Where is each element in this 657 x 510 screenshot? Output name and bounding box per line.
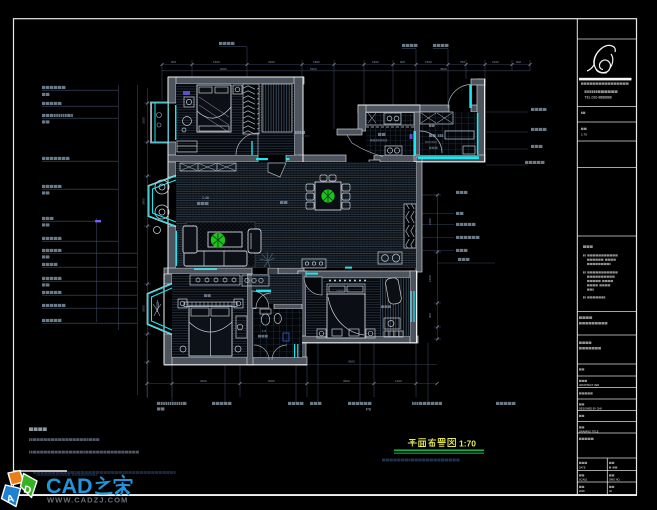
svg-text:1:70: 1:70 bbox=[459, 439, 476, 449]
svg-text:A0: A0 bbox=[609, 490, 613, 493]
svg-text:1.5: 1.5 bbox=[262, 329, 267, 333]
svg-text:DWG NO.: DWG NO. bbox=[609, 479, 621, 482]
svg-text:1200: 1200 bbox=[395, 379, 402, 383]
svg-text:9000: 9000 bbox=[220, 67, 227, 71]
svg-text:2100: 2100 bbox=[492, 60, 499, 64]
svg-text:2250: 2250 bbox=[428, 218, 432, 225]
svg-text:1800X2000: 1800X2000 bbox=[336, 289, 350, 293]
svg-text:DRAWING TITLE: DRAWING TITLE bbox=[579, 431, 599, 434]
svg-text:750: 750 bbox=[460, 60, 465, 64]
svg-text:1.46: 1.46 bbox=[202, 196, 209, 200]
svg-text:3600: 3600 bbox=[348, 360, 355, 364]
svg-text:TEL:010-8888888: TEL:010-8888888 bbox=[585, 96, 612, 100]
svg-text:1500: 1500 bbox=[372, 60, 379, 64]
svg-text:900: 900 bbox=[171, 60, 176, 64]
svg-text:WWW.CADZJ.COM: WWW.CADZJ.COM bbox=[47, 496, 128, 505]
svg-text:3900: 3900 bbox=[142, 198, 146, 205]
svg-text:1800: 1800 bbox=[313, 60, 320, 64]
svg-text:900: 900 bbox=[400, 60, 405, 64]
svg-text:1:70: 1:70 bbox=[581, 133, 587, 137]
svg-text:P8: P8 bbox=[366, 407, 372, 412]
svg-text:1500: 1500 bbox=[425, 60, 432, 64]
svg-text:DESIGNED BY CHK: DESIGNED BY CHK bbox=[579, 408, 602, 411]
svg-text:3300: 3300 bbox=[268, 60, 275, 64]
svg-text:ARCHITECT VER: ARCHITECT VER bbox=[579, 384, 599, 387]
svg-text:CAD: CAD bbox=[46, 474, 93, 498]
svg-text:DATE: DATE bbox=[579, 467, 586, 470]
svg-text:2600: 2600 bbox=[200, 379, 207, 383]
svg-text:900: 900 bbox=[516, 60, 521, 64]
svg-text:4500: 4500 bbox=[440, 67, 447, 71]
svg-text:3600: 3600 bbox=[142, 305, 146, 312]
svg-text:1500: 1500 bbox=[213, 60, 220, 64]
svg-text:5400: 5400 bbox=[310, 67, 317, 71]
svg-text:1500: 1500 bbox=[428, 275, 432, 282]
svg-text:3600: 3600 bbox=[343, 379, 350, 383]
svg-text:800X800: 800X800 bbox=[425, 140, 437, 144]
svg-text:900: 900 bbox=[428, 313, 432, 318]
svg-text:2000: 2000 bbox=[268, 379, 275, 383]
svg-text:2008: 2008 bbox=[579, 490, 585, 493]
svg-text:SCALE: SCALE bbox=[579, 479, 588, 482]
svg-text:3300: 3300 bbox=[142, 117, 146, 124]
